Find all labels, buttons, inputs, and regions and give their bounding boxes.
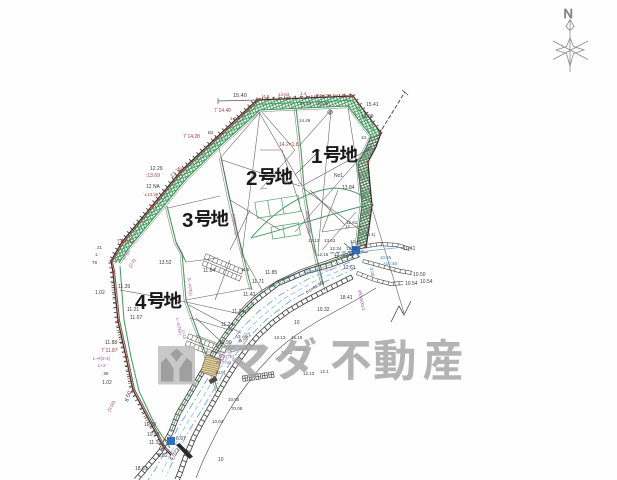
- svg-text:`±13.36: `±13.36: [143, 192, 159, 197]
- svg-text:11.07: 11.07: [130, 315, 142, 321]
- svg-text:10: 10: [294, 320, 300, 326]
- svg-text:10.45: 10.45: [380, 255, 392, 260]
- svg-text:#2.7 m2: #2.7 m2: [216, 360, 232, 365]
- svg-text:13.52: 13.52: [159, 260, 172, 266]
- svg-text:10: 10: [218, 457, 224, 463]
- svg-text:10.50: 10.50: [413, 272, 426, 278]
- svg-text:1.02: 1.02: [102, 380, 112, 386]
- svg-text:1.`: 1.`: [95, 252, 101, 257]
- svg-text:7`14.28: 7`14.28: [183, 134, 200, 140]
- svg-text:18.41: 18.41: [340, 295, 353, 301]
- svg-text:11.34: 11.34: [232, 309, 244, 315]
- svg-text:3.8%: 3.8%: [341, 94, 351, 99]
- svg-text:10.30: 10.30: [303, 269, 315, 274]
- svg-text:10.0(: 10.0(: [215, 370, 226, 375]
- svg-text:1.4: 1.4: [300, 91, 307, 96]
- svg-text:~10.41: ~10.41: [400, 246, 416, 252]
- svg-text:+10.48: +10.48: [383, 261, 397, 266]
- svg-text:11.43: 11.43: [243, 292, 255, 298]
- svg-text:11.09: 11.09: [144, 422, 156, 428]
- svg-text::13.69: :13.69: [146, 173, 160, 179]
- svg-text:. 86: . 86: [101, 371, 109, 376]
- svg-text:70.08: 70.08: [231, 406, 243, 411]
- svg-text:12.15: 12.15: [317, 252, 329, 257]
- svg-text:B2: B2: [208, 130, 214, 135]
- svg-text:15.40: 15.40: [233, 93, 247, 99]
- svg-text:2: 2: [246, 167, 257, 190]
- svg-text:12.13: 12.13: [308, 238, 320, 243]
- svg-text:12.34: 12.34: [330, 246, 342, 251]
- svg-text:13.84: 13.84: [342, 185, 355, 191]
- svg-text:—: —: [262, 186, 267, 192]
- svg-text:L+2: L+2: [98, 363, 106, 368]
- svg-text:10.04: 10.04: [212, 419, 224, 424]
- svg-text:11.24: 11.24: [221, 322, 233, 328]
- svg-text:21: 21: [97, 245, 103, 250]
- svg-text:'8.02: '8.02: [157, 453, 168, 459]
- svg-text:=====: =====: [320, 267, 332, 272]
- svg-text:1.02: 1.02: [95, 290, 105, 296]
- svg-text:14.2=1.8: 14.2=1.8: [279, 142, 299, 148]
- svg-text:13.: 13.: [361, 135, 367, 140]
- svg-text:15.41: 15.41: [366, 102, 379, 108]
- svg-text:11.39: 11.39: [118, 284, 130, 290]
- svg-text:11 =3.5: 11 =3.5: [334, 254, 349, 259]
- svg-text:13.13.: 13.13.: [274, 335, 287, 340]
- svg-text:14.46: 14.46: [317, 101, 329, 106]
- svg-text:3: 3: [182, 209, 193, 232]
- svg-text:11.21: 11.21: [127, 307, 139, 313]
- svg-text:12.1: 12.1: [320, 369, 329, 374]
- svg-text:|4.5: |4.5: [262, 94, 270, 99]
- svg-text:|0: |0: [329, 110, 333, 115]
- svg-text:18.61: 18.61: [135, 466, 148, 472]
- svg-text:11.88 —: 11.88 —: [105, 340, 124, 346]
- svg-text:12.61: 12.61: [343, 265, 356, 271]
- svg-text:12 NA: 12 NA: [146, 184, 161, 190]
- svg-text:10.54: 10.54: [420, 279, 433, 285]
- svg-text:12.: 12.: [345, 224, 351, 229]
- svg-text:12.41: 12.41: [350, 239, 362, 244]
- svg-text:11.18: 11.18: [149, 440, 161, 446]
- svg-text:1.0: 1.0: [230, 116, 237, 121]
- svg-text:12.29: 12.29: [150, 166, 163, 172]
- svg-text:L~#(2-4): L~#(2-4): [93, 356, 111, 361]
- svg-text:10.98: 10.98: [147, 432, 160, 438]
- svg-text:78: 78: [92, 260, 98, 265]
- svg-text:11.64: 11.64: [203, 268, 215, 274]
- svg-text:10.50: 10.50: [228, 397, 240, 402]
- svg-text:#==(7E): #==(7E): [219, 354, 235, 359]
- svg-text:12.53: 12.53: [346, 246, 358, 251]
- svg-text:7`12.42: 7`12.42: [117, 239, 134, 245]
- svg-text:14.63: 14.63: [278, 92, 290, 97]
- svg-text:7`14.40: 7`14.40: [214, 108, 231, 114]
- svg-text:16.18: 16.18: [291, 335, 303, 340]
- svg-text:6.97: 6.97: [176, 436, 186, 442]
- svg-text:13.63: 13.63: [324, 238, 336, 243]
- svg-text:11.85: 11.85: [265, 270, 277, 276]
- svg-text:P4 +3.8: P4 +3.8: [316, 93, 332, 98]
- svg-text:1: 1: [311, 145, 322, 168]
- svg-text:14.57: 14.57: [300, 101, 312, 106]
- svg-text:No1: No1: [334, 173, 343, 179]
- svg-text:10.54: 10.54: [405, 281, 418, 287]
- svg-text:11.5: 11.5: [241, 267, 250, 272]
- svg-text:14.09: 14.09: [361, 114, 374, 120]
- svg-text:10.1(: 10.1(: [365, 232, 376, 237]
- svg-text:14.49: 14.49: [299, 118, 311, 123]
- svg-text:11.71: 11.71: [252, 279, 264, 285]
- svg-text:7`11.87: 7`11.87: [101, 348, 118, 354]
- svg-text:10.32: 10.32: [317, 307, 330, 313]
- svg-text:N: N: [564, 6, 573, 21]
